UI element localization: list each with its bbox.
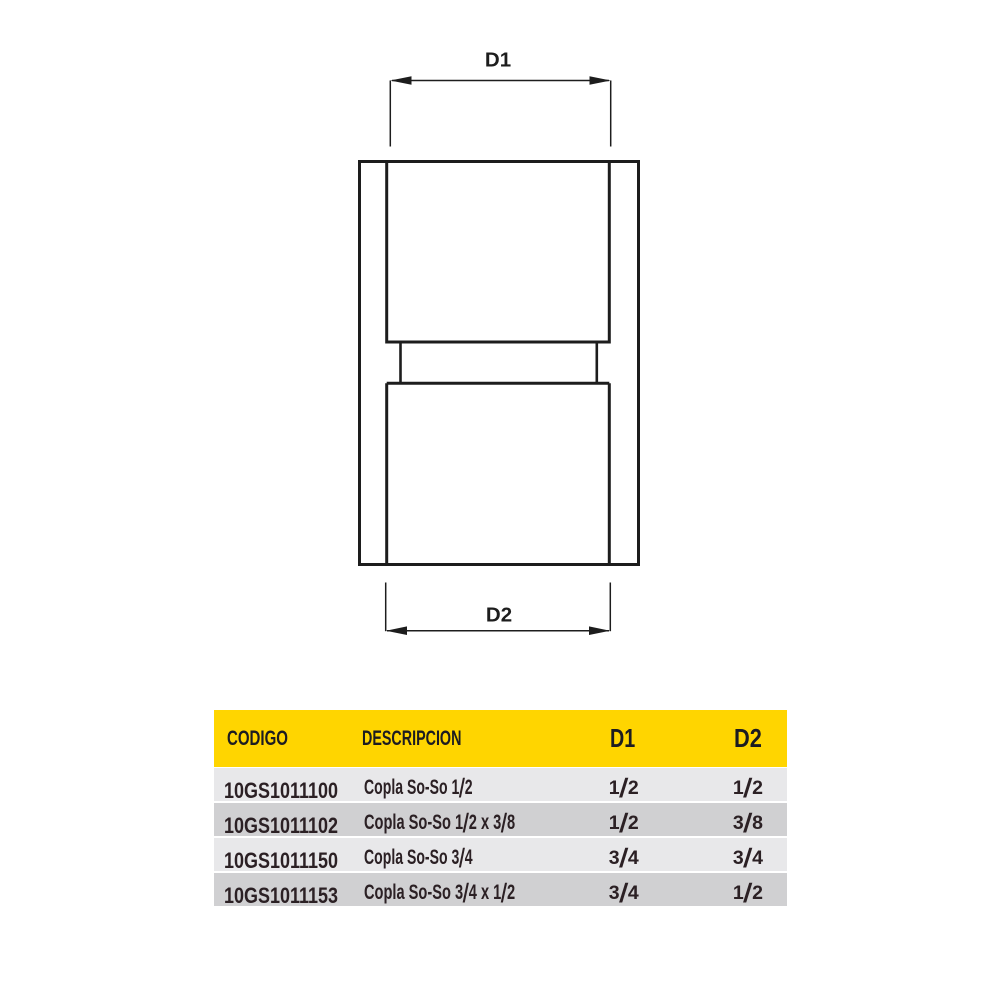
- svg-text:D2: D2: [486, 604, 512, 627]
- svg-text:D1: D1: [485, 49, 511, 72]
